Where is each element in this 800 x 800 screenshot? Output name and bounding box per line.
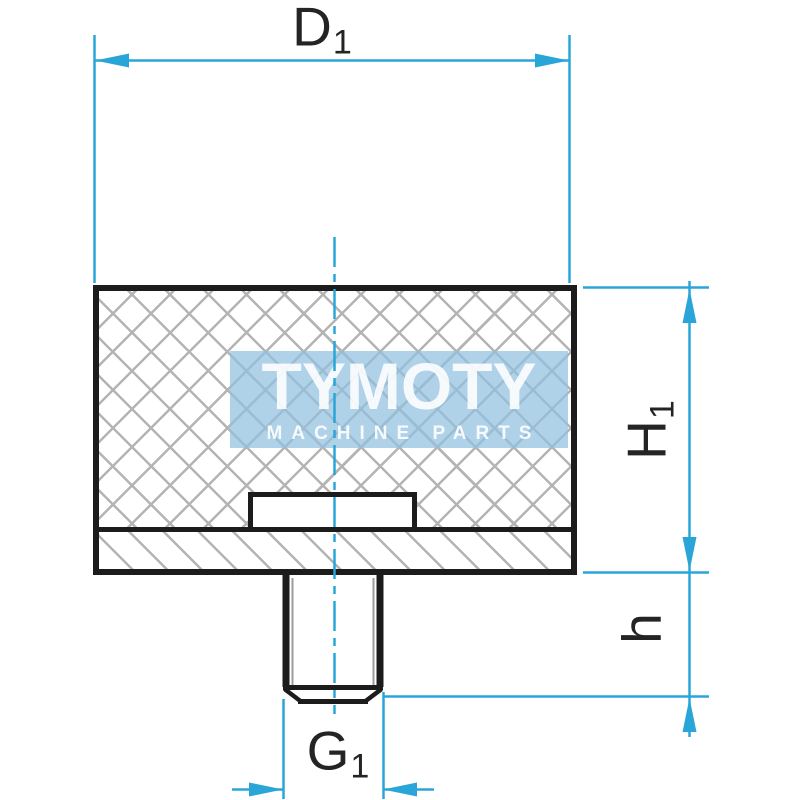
technical-drawing-canvas: TYMOTY MACHINE PARTS [0, 0, 800, 800]
threaded-stud [283, 575, 383, 702]
g1-arrow-left-icon [383, 783, 417, 797]
d1-arrow-right-icon [535, 54, 569, 68]
d1-arrow-left-icon [95, 54, 129, 68]
stud-chamfer-right [365, 689, 382, 702]
g1-arrow-right-icon [249, 783, 283, 797]
h-arrow-up-icon [683, 698, 697, 732]
g1-letter: G [307, 720, 350, 782]
g1-subscript: 1 [350, 747, 369, 785]
base-plate-hatch-area [99, 532, 571, 569]
dimension-label-h1: H1 [620, 400, 675, 460]
dimension-label-g1: G1 [307, 724, 370, 779]
embedded-nut-outline [248, 492, 417, 532]
h1-letter: H [616, 420, 678, 460]
dimension-label-d1: D1 [292, 0, 352, 55]
dimension-label-h: h [615, 612, 670, 644]
d1-subscript: 1 [333, 23, 352, 61]
stud-chamfer-left [285, 689, 302, 702]
h1-arrow-up-icon [683, 289, 697, 323]
d1-letter: D [292, 0, 332, 58]
h1-arrow-down-icon [683, 537, 697, 571]
h1-subscript: 1 [643, 400, 681, 419]
d1-dimension [95, 35, 570, 283]
h-dimension [383, 572, 709, 737]
h-letter: h [611, 613, 673, 644]
